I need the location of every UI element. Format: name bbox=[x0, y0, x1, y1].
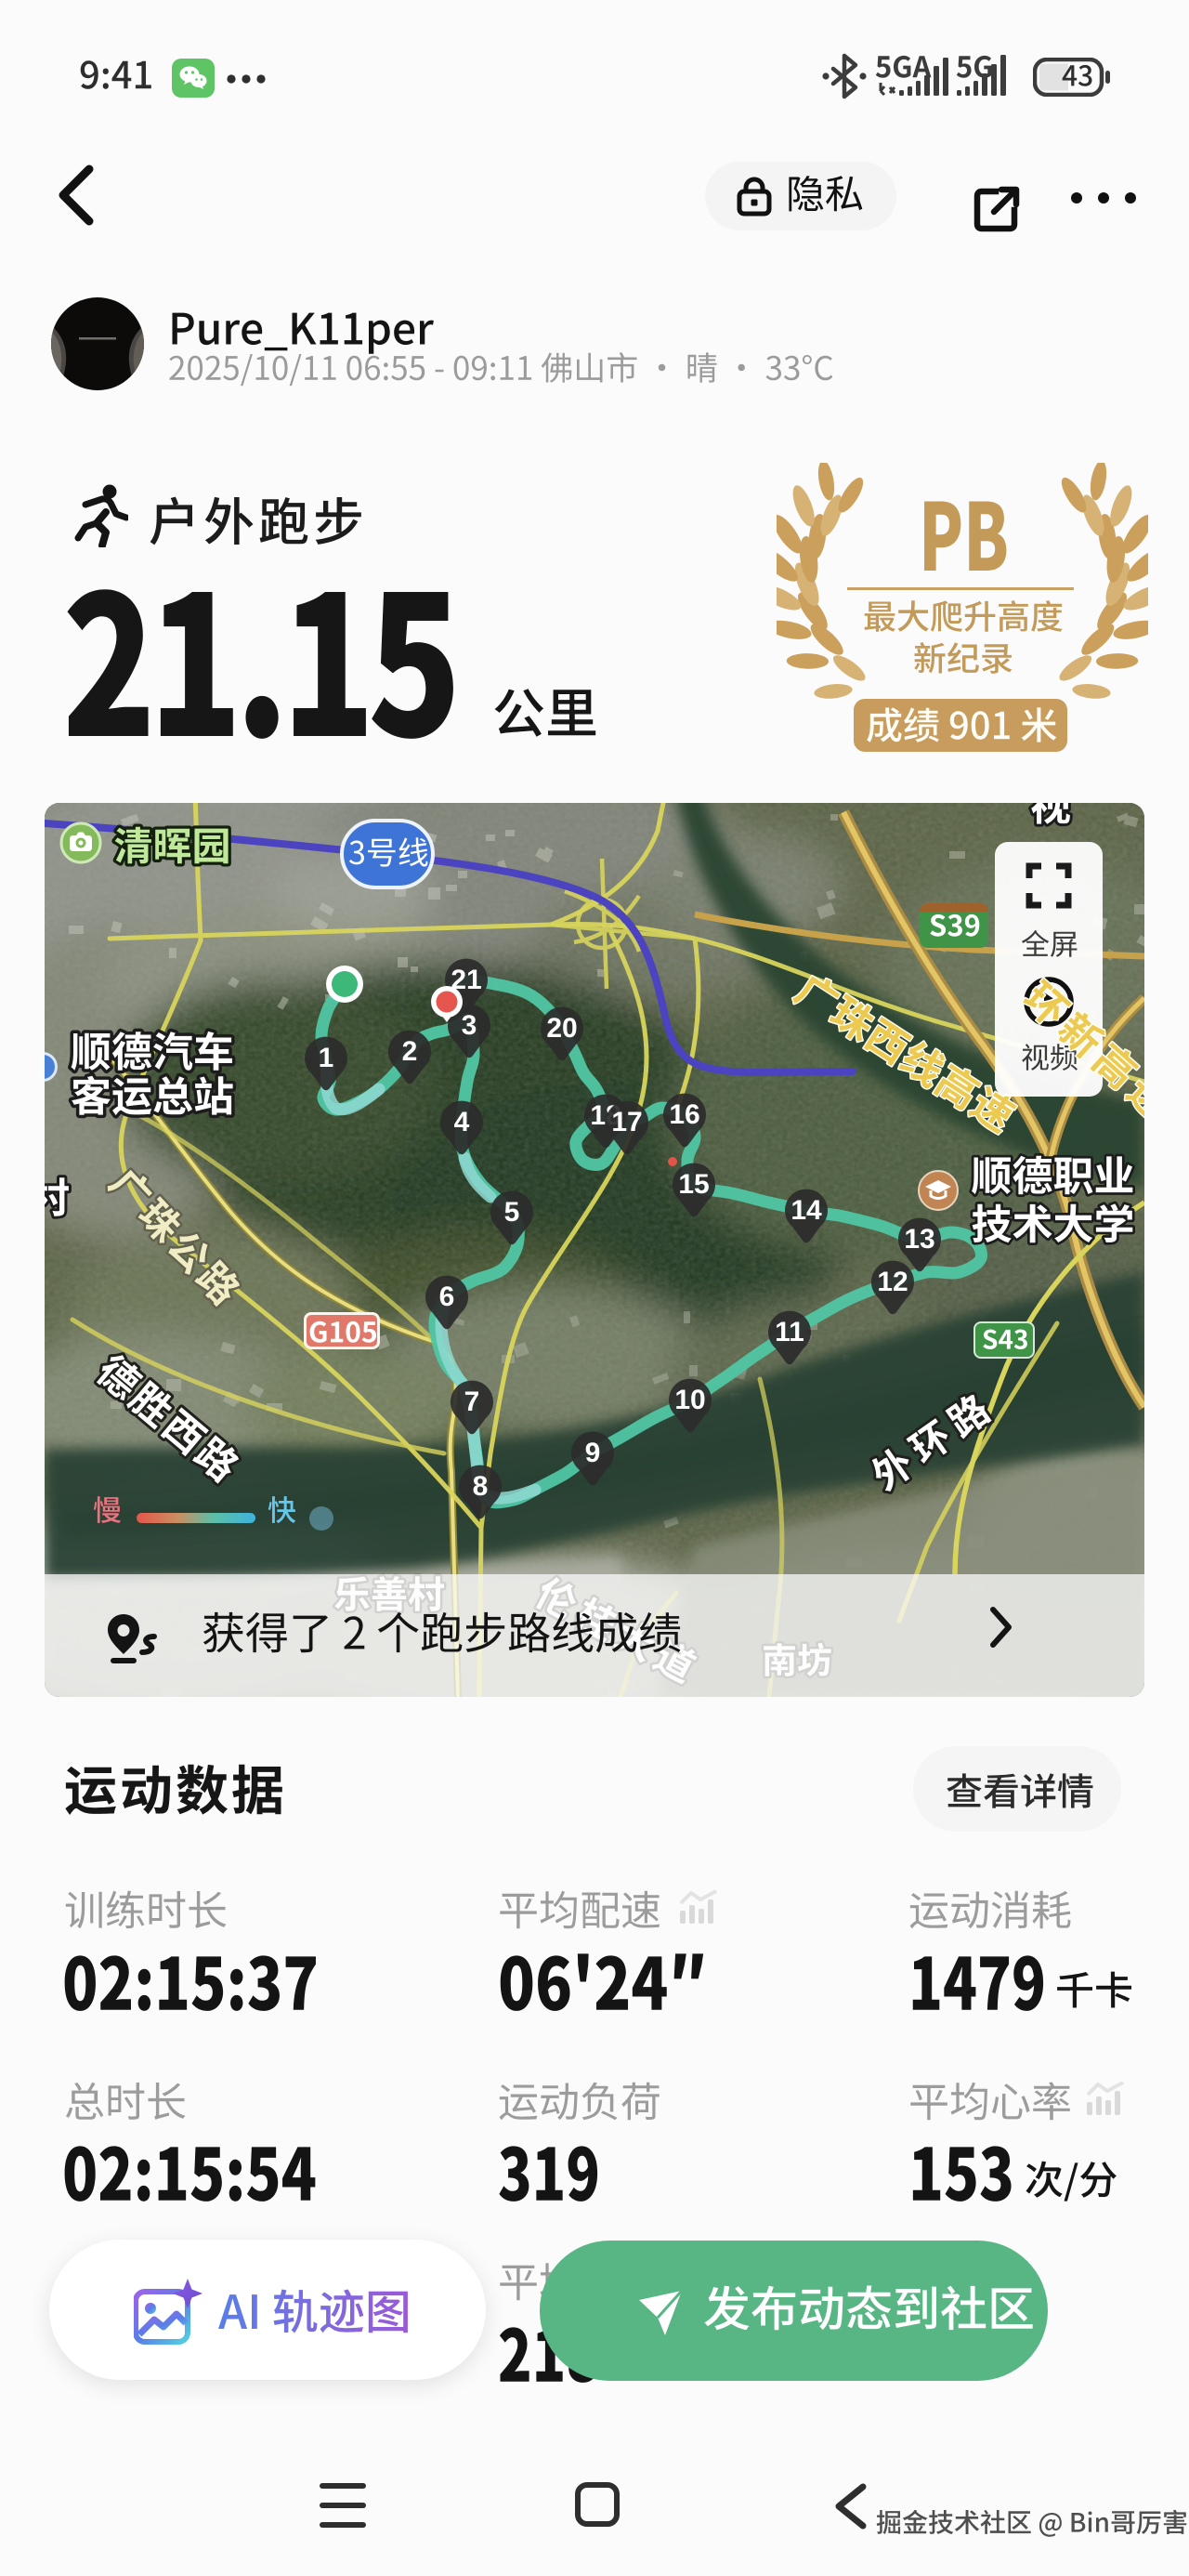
svg-text:1: 1 bbox=[319, 1043, 334, 1073]
svg-text:17: 17 bbox=[611, 1107, 642, 1137]
svg-text:8: 8 bbox=[473, 1471, 489, 1502]
svg-text:6: 6 bbox=[439, 1281, 455, 1312]
svg-text:4: 4 bbox=[454, 1107, 470, 1137]
svg-text:20: 20 bbox=[546, 1013, 577, 1044]
svg-text:12: 12 bbox=[877, 1267, 908, 1297]
svg-text:11: 11 bbox=[775, 1317, 804, 1347]
svg-text:7: 7 bbox=[464, 1387, 480, 1417]
svg-text:10: 10 bbox=[674, 1385, 705, 1415]
svg-text:2: 2 bbox=[402, 1036, 418, 1067]
svg-text:16: 16 bbox=[669, 1099, 699, 1130]
svg-text:13: 13 bbox=[904, 1224, 934, 1255]
svg-text:14: 14 bbox=[790, 1195, 822, 1226]
svg-text:9: 9 bbox=[585, 1438, 601, 1468]
svg-text:3: 3 bbox=[462, 1010, 477, 1041]
svg-text:5: 5 bbox=[504, 1197, 520, 1228]
svg-text:15: 15 bbox=[678, 1169, 709, 1200]
